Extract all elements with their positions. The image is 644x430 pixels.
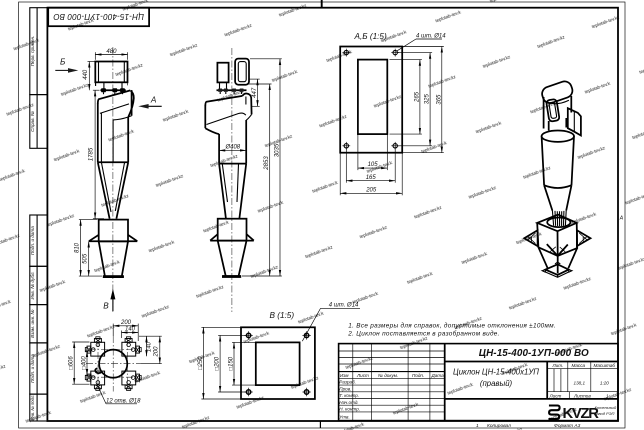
svg-text:105: 105 <box>368 162 379 168</box>
svg-text:1:20: 1:20 <box>600 381 609 386</box>
svg-text:Б: Б <box>60 58 66 67</box>
svg-text:Формат А3: Формат А3 <box>554 423 581 429</box>
svg-text:3035: 3035 <box>274 143 280 157</box>
svg-text:□250: □250 <box>198 356 204 370</box>
svg-text:505: 505 <box>83 253 89 264</box>
svg-text:Разраб.: Разраб. <box>339 380 356 385</box>
svg-text:ЦН-15-400-1УП-000 ВО: ЦН-15-400-1УП-000 ВО <box>479 348 589 359</box>
svg-text:1: 1 <box>476 423 479 429</box>
svg-text:Подп. и дата: Подп. и дата <box>30 354 35 383</box>
svg-text:1785: 1785 <box>89 147 95 161</box>
svg-text:205: 205 <box>365 187 377 193</box>
svg-text:Лист: Лист <box>356 373 369 378</box>
svg-text:Перв. примен.: Перв. примен. <box>30 36 35 67</box>
svg-text:Подп. и дата: Подп. и дата <box>30 226 35 255</box>
svg-text:12 отв. Ø18: 12 отв. Ø18 <box>106 398 141 404</box>
svg-text:480: 480 <box>106 49 117 55</box>
svg-text:Дата: Дата <box>431 373 445 378</box>
svg-text:1. Все размеры для справок, до: 1. Все размеры для справок, допустимые о… <box>348 321 556 329</box>
svg-text:2853: 2853 <box>264 156 270 171</box>
svg-text:325: 325 <box>425 94 431 105</box>
svg-text:Лист: Лист <box>549 394 562 399</box>
svg-text:440: 440 <box>83 69 89 80</box>
svg-text:Котельный: Котельный <box>595 405 618 410</box>
svg-text:2. Циклон поставляется в разоб: 2. Циклон поставляется в разобранном вид… <box>347 329 499 337</box>
svg-text:А,Б (1:5): А,Б (1:5) <box>354 32 387 41</box>
svg-text:Масштаб: Масштаб <box>594 363 616 368</box>
svg-text:Нач.отд.: Нач.отд. <box>339 400 358 405</box>
svg-text:А: А <box>150 96 157 105</box>
svg-text:165: 165 <box>366 175 377 181</box>
svg-text:Листов: Листов <box>573 394 591 399</box>
svg-text:Т. контр.: Т. контр. <box>339 393 359 398</box>
svg-text:Ø408: Ø408 <box>224 145 240 151</box>
svg-text:□200: □200 <box>215 356 221 370</box>
svg-text:Циклон ЦН-15-400х1УП: Циклон ЦН-15-400х1УП <box>453 367 539 376</box>
svg-text:140: 140 <box>147 341 153 352</box>
svg-text:265: 265 <box>414 91 420 103</box>
svg-text:Копировал: Копировал <box>487 423 511 429</box>
svg-text:1: 1 <box>606 394 609 399</box>
svg-text:810: 810 <box>75 242 81 253</box>
svg-text:Инв. № подл.: Инв. № подл. <box>30 395 35 421</box>
svg-text:А: А <box>619 216 624 222</box>
svg-text:Справ. №: Справ. № <box>30 111 35 132</box>
svg-text:Инв. № дубл.: Инв. № дубл. <box>30 271 35 299</box>
svg-text:(правый): (правый) <box>480 379 513 388</box>
svg-text:В: В <box>103 302 109 311</box>
svg-text:365: 365 <box>436 94 442 105</box>
svg-text:Лит.: Лит. <box>552 363 564 368</box>
svg-text:□400: □400 <box>81 356 87 370</box>
svg-text:Н. контр.: Н. контр. <box>339 407 360 412</box>
svg-text:Подп.: Подп. <box>412 373 424 378</box>
svg-text:200: 200 <box>120 320 132 326</box>
svg-text:Масса: Масса <box>572 363 586 368</box>
svg-text:В (1:5): В (1:5) <box>270 311 295 320</box>
svg-text:4 шт. Ø14: 4 шт. Ø14 <box>329 303 359 309</box>
svg-text:447: 447 <box>252 87 258 98</box>
svg-text:□606: □606 <box>69 356 75 370</box>
svg-text:Изм: Изм <box>340 373 349 378</box>
svg-text:ЦН-15-400-1УП-000 ВО: ЦН-15-400-1УП-000 ВО <box>53 12 144 21</box>
svg-text:Пров.: Пров. <box>339 386 351 391</box>
svg-text:200: 200 <box>154 346 160 358</box>
svg-text:4 шт. Ø14: 4 шт. Ø14 <box>416 34 446 40</box>
svg-text:№ докум.: № докум. <box>378 373 398 378</box>
svg-text:140: 140 <box>125 327 136 333</box>
svg-text:завод РЭП: завод РЭП <box>594 411 615 416</box>
svg-text:Утв.: Утв. <box>339 415 349 420</box>
svg-text:138,1: 138,1 <box>574 381 586 386</box>
svg-text:□150: □150 <box>228 356 234 370</box>
svg-text:Взам. инв. №: Взам. инв. № <box>30 309 35 337</box>
